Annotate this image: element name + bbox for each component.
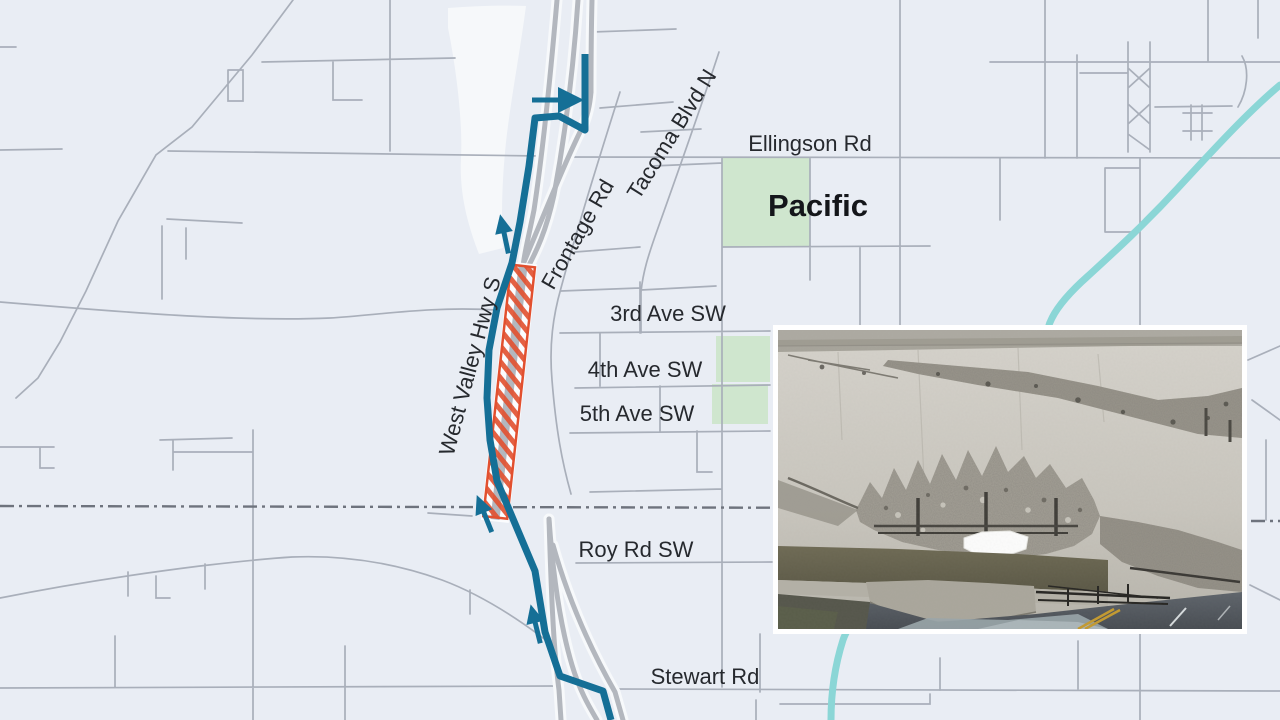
road-label-stewart-rd: Stewart Rd bbox=[651, 664, 760, 689]
road-label-3rd-ave: 3rd Ave SW bbox=[610, 301, 726, 326]
road-label-5th-ave: 5th Ave SW bbox=[580, 401, 695, 426]
bridge-damage-photo bbox=[778, 330, 1242, 629]
city-label-pacific: Pacific bbox=[768, 188, 868, 223]
park-area bbox=[716, 336, 770, 382]
road-label-ellingson: Ellingson Rd bbox=[748, 131, 872, 156]
bridge-damage-photo-frame bbox=[773, 325, 1247, 634]
park-area bbox=[712, 384, 768, 424]
road-label-roy-rd: Roy Rd SW bbox=[579, 537, 694, 562]
road-label-4th-ave: 4th Ave SW bbox=[588, 357, 703, 382]
map-canvas: Ellingson Rd Pacific 3rd Ave SW 4th Ave … bbox=[0, 0, 1280, 720]
